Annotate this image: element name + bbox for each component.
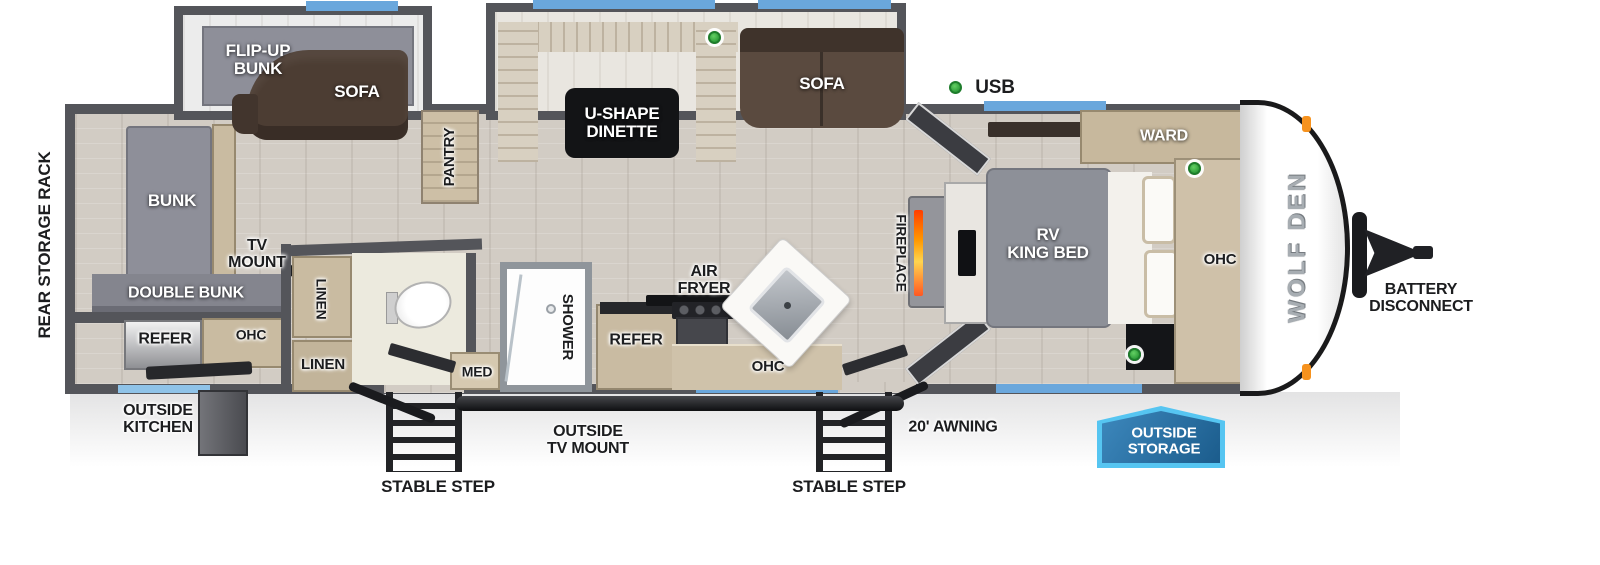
usb-indicator-dot-dinette — [708, 31, 721, 44]
slide-main-window-right — [758, 0, 891, 9]
outside-tv-mount-label: OUTSIDE TV MOUNT — [547, 424, 629, 458]
outside-kitchen-access-strip — [118, 385, 210, 393]
tongue-jack — [1352, 212, 1367, 298]
hitch-a-frame — [1364, 229, 1416, 277]
double-bunk-label: DOUBLE BUNK — [128, 286, 244, 303]
bed-pillow-bottom — [1144, 250, 1178, 318]
battery-disconnect-label: BATTERY DISCONNECT — [1369, 282, 1473, 316]
slide-rear-window — [306, 1, 398, 11]
awning-bar — [456, 396, 904, 411]
stable-step-left-label: STABLE STEP — [381, 478, 495, 496]
tv-mount-label: TV MOUNT — [228, 238, 286, 272]
bedroom-overhead-cabinet — [1174, 158, 1250, 384]
bedroom-tv-icon — [958, 230, 976, 276]
ward-label: WARD — [1140, 129, 1188, 146]
rear-ohc-label: OHC — [236, 328, 267, 343]
rear-storage-rack-label: REAR STORAGE RACK — [36, 151, 54, 338]
linen-lower-label: LINEN — [301, 357, 345, 373]
main-sofa-label: SOFA — [799, 75, 845, 93]
usb-indicator-dot-nightstand — [1128, 348, 1141, 361]
bedroom-top-shelf — [988, 122, 1084, 137]
kitchen-refer-label: REFER — [609, 333, 662, 350]
med-label: MED — [462, 365, 493, 380]
brand-logo: WOLF DEN — [1284, 171, 1309, 323]
bedroom-ohc-label: OHC — [1204, 252, 1237, 268]
kitchen-ohc-label: OHC — [752, 359, 785, 375]
awning-label: 20' AWNING — [908, 420, 997, 437]
window-bedroom-bottom — [996, 384, 1142, 393]
toilet-room-right-wall — [466, 253, 476, 365]
sink-drain — [784, 302, 791, 309]
fireplace-label: FIREPLACE — [894, 214, 909, 292]
outside-kitchen-door — [198, 390, 248, 456]
slide-main-window-left — [533, 0, 715, 9]
rear-refer-label: REFER — [138, 332, 191, 349]
u-shape-dinette-label: U-SHAPE DINETTE — [584, 105, 659, 141]
pantry-label: PANTRY — [442, 128, 458, 187]
air-fryer-label: AIR FRYER — [678, 264, 731, 298]
rv-king-bed-label: RV KING BED — [1007, 226, 1089, 262]
marker-light-bottom — [1302, 364, 1311, 380]
bed-pillow-top — [1142, 176, 1176, 244]
rear-sofa-label: SOFA — [334, 83, 380, 101]
dinette-bench-left — [498, 22, 538, 162]
shower-label: SHOWER — [559, 294, 575, 360]
rear-overhead-cabinet — [202, 318, 286, 368]
outside-kitchen-label: OUTSIDE KITCHEN — [123, 403, 193, 437]
usb-indicator-dot-wardrobe — [1188, 162, 1201, 175]
outside-storage-label: OUTSIDE STORAGE — [1128, 425, 1201, 457]
flip-up-bunk-label: FLIP-UP BUNK — [226, 42, 291, 78]
hitch-coupler — [1413, 246, 1433, 259]
usb-legend-dot — [949, 81, 962, 94]
marker-light-top — [1302, 116, 1311, 132]
rv-floorplan: REAR STORAGE RACK FLIP-UP BUNK SOFA U-SH… — [0, 0, 1600, 565]
bedroom-nightstand — [1126, 324, 1180, 370]
linen-upper-label: LINEN — [314, 278, 329, 319]
bunk-label: BUNK — [148, 192, 196, 210]
fireplace-flame-strip — [914, 210, 923, 296]
rear-sofa-armrest — [232, 94, 258, 134]
stable-step-right-label: STABLE STEP — [792, 478, 906, 496]
shower-head-icon — [546, 304, 556, 314]
usb-legend-label: USB — [975, 78, 1015, 98]
